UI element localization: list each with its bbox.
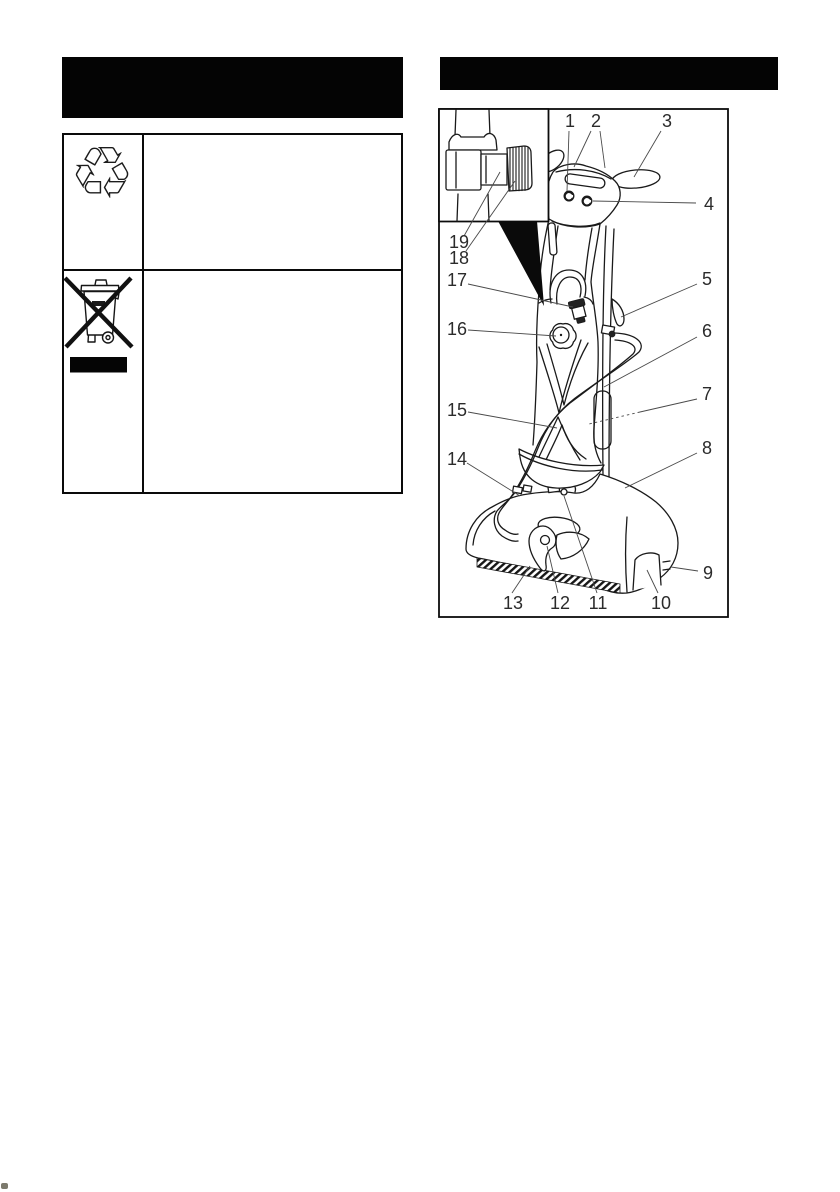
pedal-screw — [541, 536, 550, 545]
callout-number-9: 9 — [703, 563, 713, 583]
detail-inset — [439, 109, 549, 222]
filler-knob-dot — [560, 334, 562, 336]
callout-number-1: 1 — [565, 111, 575, 131]
callout-number-19: 19 — [449, 232, 469, 252]
callout-number-17: 17 — [447, 270, 467, 290]
callout-number-11: 11 — [589, 593, 608, 613]
callout-number-10: 10 — [651, 593, 671, 613]
end-cap-notch — [633, 553, 661, 590]
inset-valve-block — [446, 150, 481, 190]
bin-foot — [88, 335, 95, 342]
scan-smudge — [1, 1183, 8, 1189]
bin-wheel — [103, 332, 114, 343]
callout-number-16: 16 — [447, 319, 467, 339]
callout-number-5: 5 — [702, 269, 712, 289]
left-title-bar-redacted — [62, 57, 403, 118]
manual-page: ♲ — [0, 0, 840, 1192]
recycling-symbol-cell: ♲ — [62, 137, 142, 267]
bin-handle — [95, 280, 107, 285]
nozzle-port — [561, 489, 567, 495]
callout-number-2: 2 — [591, 111, 601, 131]
right-title-bar-redacted — [440, 57, 778, 90]
recycling-icon: ♲ — [70, 131, 135, 215]
callout-number-13: 13 — [503, 593, 523, 613]
callout-number-12: 12 — [550, 593, 570, 613]
table-column-divider — [142, 135, 144, 492]
crossed-out-x — [65, 278, 132, 347]
callout-number-4: 4 — [704, 194, 714, 214]
release-strip — [548, 223, 557, 255]
stem-clamp-screw — [609, 331, 615, 337]
callout-number-6: 6 — [702, 321, 712, 341]
callout-number-14: 14 — [447, 449, 467, 469]
bin-lid — [81, 286, 119, 292]
inset-nipple — [481, 154, 507, 185]
callout-number-3: 3 — [662, 111, 672, 131]
callout-number-15: 15 — [447, 400, 467, 420]
weee-black-bar — [70, 357, 127, 373]
callout-number-8: 8 — [702, 438, 712, 458]
weee-bin-icon — [62, 269, 142, 494]
parts-diagram: 12345678910111213141516171819 — [436, 107, 731, 619]
callout-number-7: 7 — [702, 384, 712, 404]
